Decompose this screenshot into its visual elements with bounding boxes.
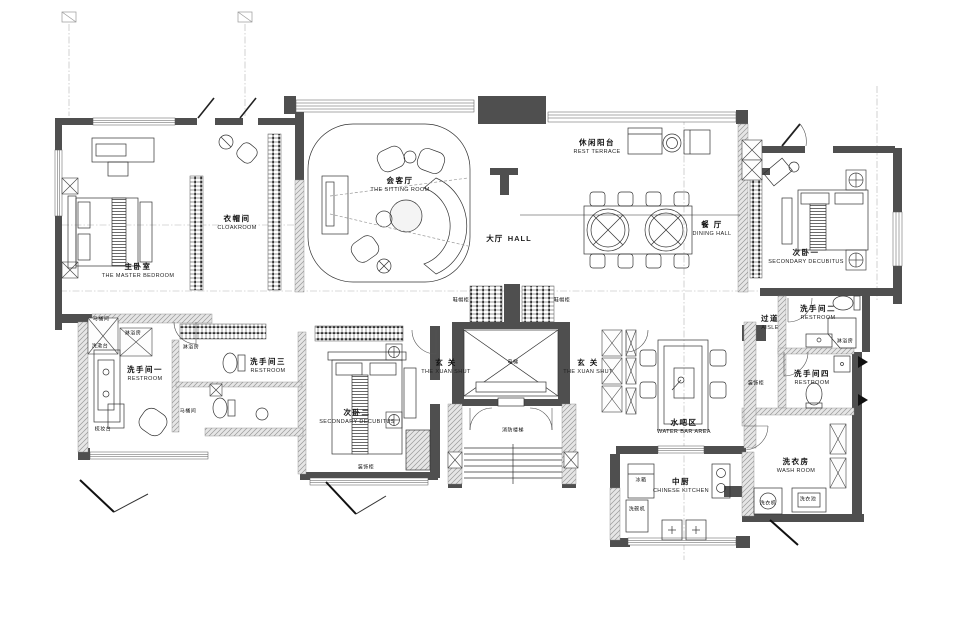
floorplan-drawing — [0, 0, 964, 627]
cabinet-racks-layer — [180, 134, 762, 341]
reference-tags — [62, 12, 252, 22]
floor-plan-page: 主卧室 THE MASTER BEDROOM 衣帽间 CLOAKROOM 会客厅… — [0, 0, 964, 627]
